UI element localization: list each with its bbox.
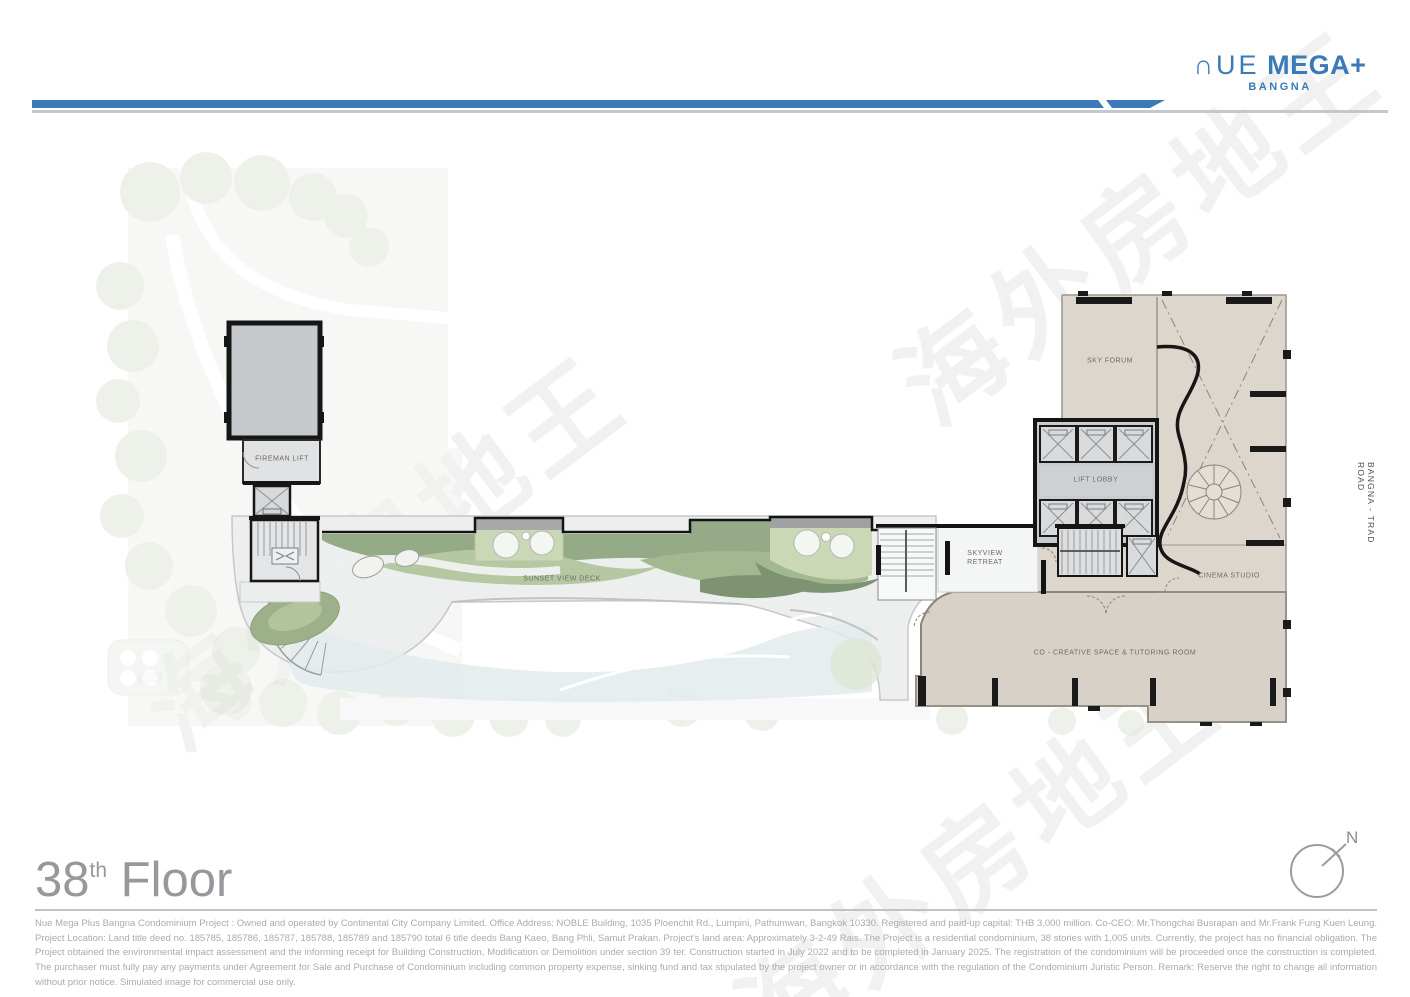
floor-word: Floor: [121, 853, 233, 907]
label-skyview-retreat: SKYVIEW RETREAT: [956, 549, 1014, 567]
label-sunset-view-deck: SUNSET VIEW DECK: [523, 576, 601, 583]
label-sky-forum: SKY FORUM: [1087, 358, 1133, 365]
label-cinema-studio: CINEMA STUDIO: [1198, 573, 1260, 580]
label-fireman-lift: FIREMAN LIFT: [255, 456, 309, 463]
label-bangna-trad-road: BANGNA - TRAD ROAD: [1356, 462, 1376, 572]
right-building: [876, 291, 1291, 726]
compass-north-label: N: [1346, 828, 1358, 848]
page-title: 38th Floor: [35, 852, 232, 908]
floor-plan-graphic: [0, 0, 1410, 997]
footer-divider: [35, 909, 1377, 911]
compass-icon: [1291, 844, 1346, 897]
floor-ordinal: th: [90, 859, 108, 882]
floor-number: 38: [35, 853, 90, 907]
label-lift-lobby: LIFT LOBBY: [1074, 477, 1119, 484]
label-co-creative-space: CO - CREATIVE SPACE & TUTORING ROOM: [1034, 650, 1196, 657]
disclaimer-text: Nue Mega Plus Bangna Condominium Project…: [35, 917, 1377, 991]
floor-plan-page: 海外房地王 海外房地王 海外房地王 ∩UE MEGA+ BANGNA: [0, 0, 1410, 997]
